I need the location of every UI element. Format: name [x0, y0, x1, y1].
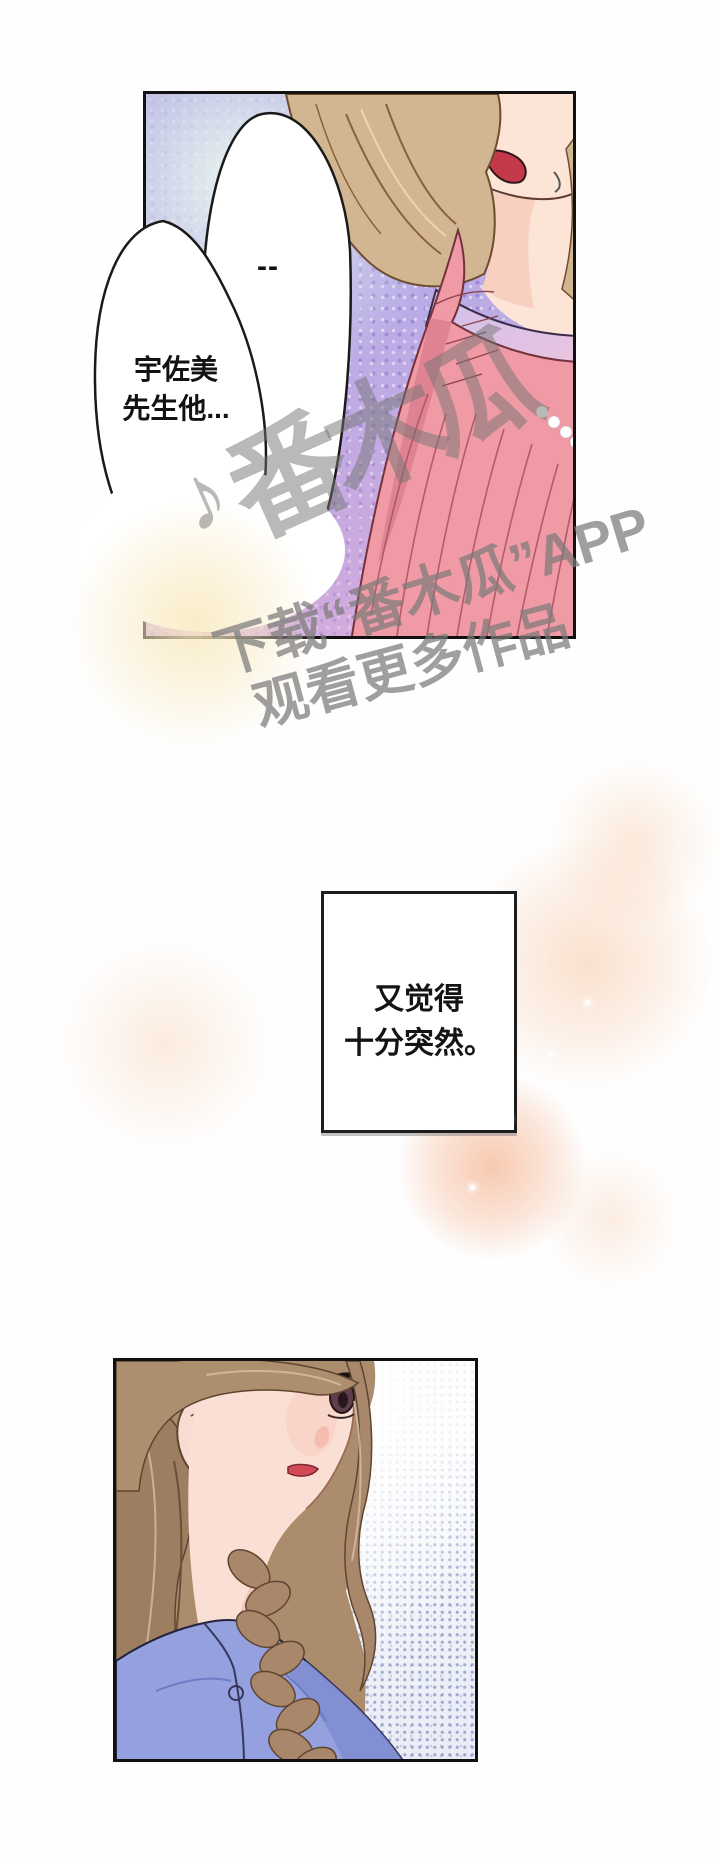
- sparkle-dot: [548, 1052, 553, 1057]
- caption-line-2: 十分突然。: [324, 1022, 514, 1066]
- cheek-shading: [286, 1386, 336, 1456]
- sparkle-dot: [585, 1000, 590, 1005]
- caption-line-1: 又觉得: [324, 978, 514, 1022]
- peach-glow-blob: [540, 1150, 680, 1290]
- speech-text-dash: --: [233, 250, 303, 284]
- sparkle-dot: [505, 1117, 510, 1122]
- speech-line: 先生他...: [122, 393, 229, 424]
- speech-text-name: 宇佐美 先生他...: [98, 350, 254, 428]
- caption-spacer: [324, 894, 514, 978]
- panel2-illustration: [116, 1361, 478, 1762]
- peach-glow-blob: [58, 938, 272, 1152]
- bubble-merge-patch: [80, 468, 345, 632]
- peach-glow-blob: [548, 758, 720, 930]
- comic-panel-bottom: [113, 1358, 478, 1762]
- comic-page: -- 宇佐美 先生他... ♪番木瓜 下载“番木瓜”APP 观看更多作品 又觉得…: [0, 0, 720, 1864]
- caption-box: 又觉得 十分突然。: [321, 891, 517, 1133]
- speech-line: 宇佐美: [134, 354, 218, 385]
- sparkle-dot: [470, 1185, 475, 1190]
